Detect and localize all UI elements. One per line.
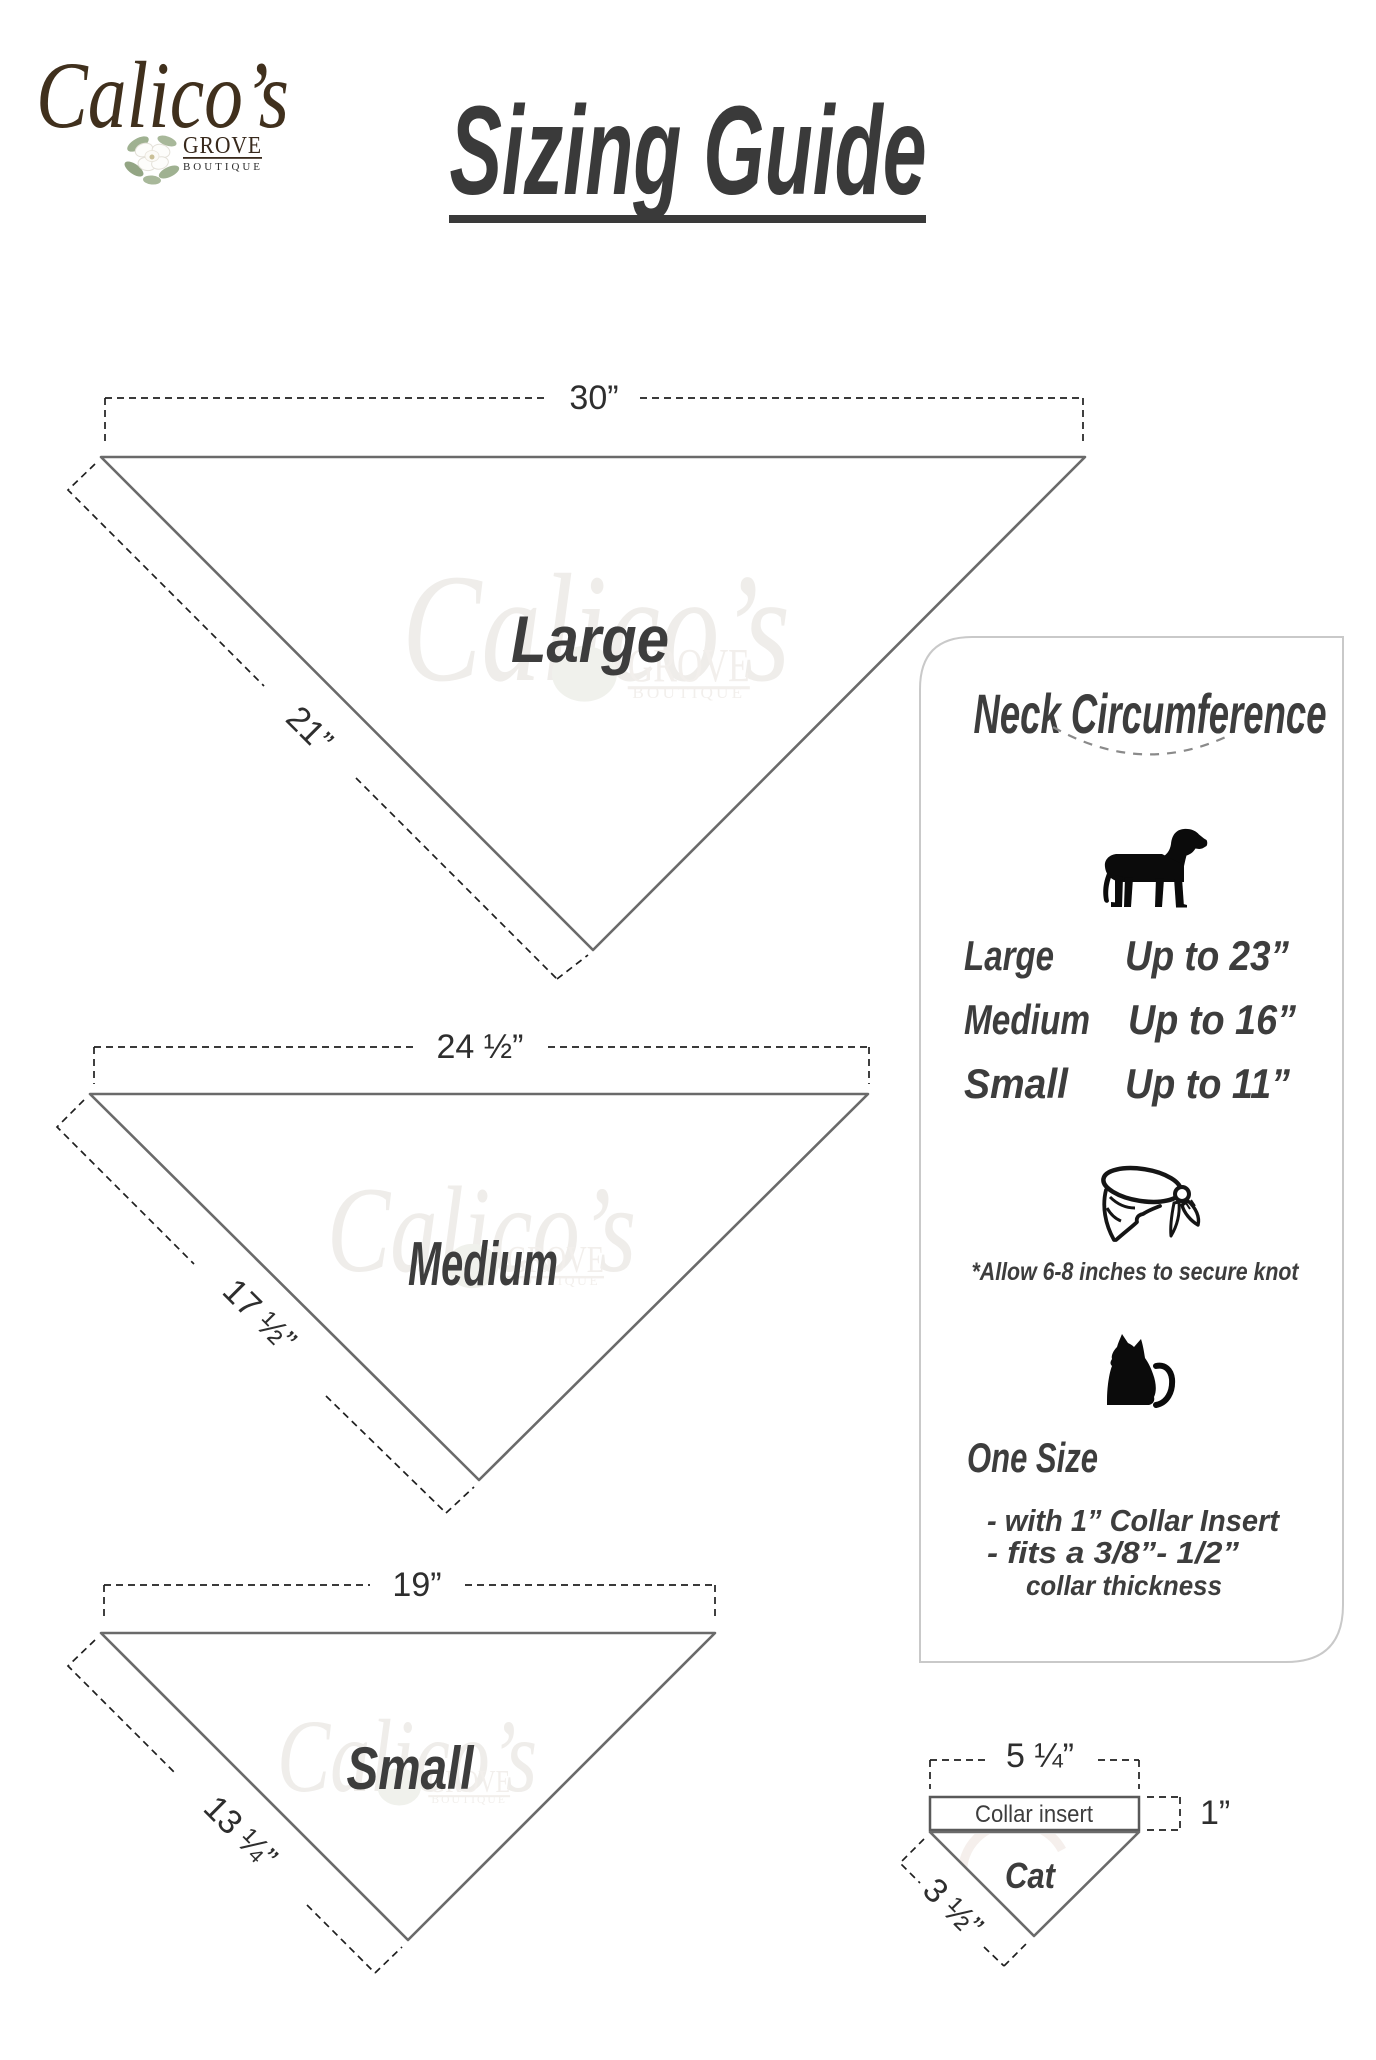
svg-text:- fits a 3/8”- 1/2”: - fits a 3/8”- 1/2” (987, 1535, 1240, 1570)
svg-text:Sizing Guide: Sizing Guide (450, 80, 927, 221)
svg-text:*Allow 6-8 inches to secure kn: *Allow 6-8 inches to secure knot (972, 1258, 1300, 1286)
svg-text:5 ¼”: 5 ¼” (1006, 1737, 1074, 1775)
svg-text:One Size: One Size (967, 1434, 1098, 1481)
svg-text:Large: Large (511, 602, 669, 676)
svg-text:collar thickness: collar thickness (1026, 1570, 1222, 1601)
svg-text:30”: 30” (569, 379, 618, 417)
svg-text:BOUTIQUE: BOUTIQUE (183, 161, 263, 173)
svg-text:Medium: Medium (964, 996, 1090, 1043)
svg-text:19”: 19” (392, 1566, 441, 1604)
svg-text:Up to 16”: Up to 16” (1128, 996, 1296, 1043)
svg-text:Small: Small (347, 1735, 475, 1802)
svg-text:Neck Circumference: Neck Circumference (974, 682, 1327, 745)
svg-text:24 ½”: 24 ½” (437, 1028, 524, 1066)
svg-text:- with 1” Collar Insert: - with 1” Collar Insert (987, 1503, 1281, 1538)
svg-text:Up to 23”: Up to 23” (1125, 932, 1289, 979)
svg-text:Up to 11”: Up to 11” (1125, 1060, 1290, 1107)
svg-text:1”: 1” (1200, 1794, 1230, 1832)
svg-text:Collar insert: Collar insert (975, 1801, 1093, 1828)
svg-text:Medium: Medium (408, 1230, 558, 1299)
svg-text:GROVE: GROVE (183, 133, 262, 159)
svg-text:Large: Large (964, 932, 1054, 979)
svg-text:Small: Small (964, 1060, 1069, 1107)
svg-text:Cat: Cat (1005, 1855, 1057, 1896)
